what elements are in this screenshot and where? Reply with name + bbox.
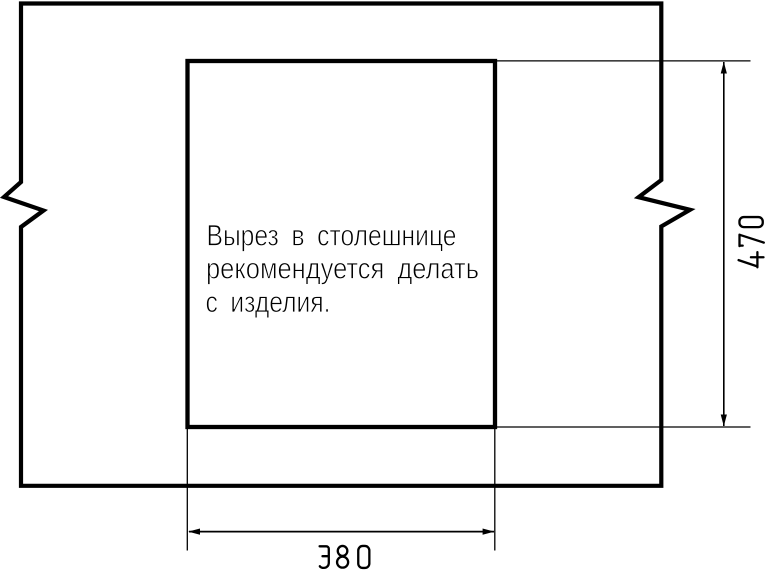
svg-text:Вырез в столешнице: Вырез в столешнице — [207, 220, 457, 253]
svg-text:рекомендуется делать: рекомендуется делать — [206, 253, 479, 286]
svg-text:с изделия.: с изделия. — [206, 286, 331, 319]
